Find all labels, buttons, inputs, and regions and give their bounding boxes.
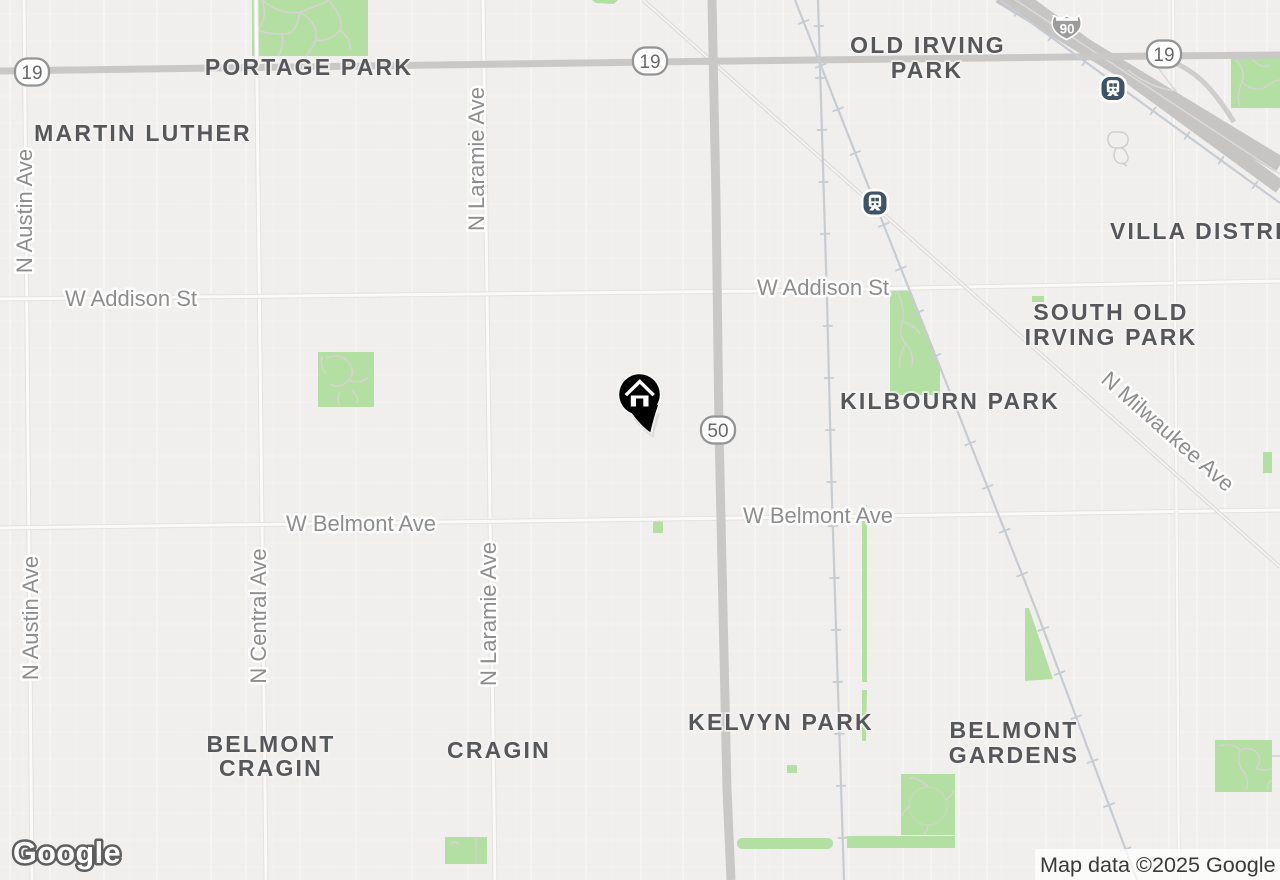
- svg-text:PORTAGE PARK: PORTAGE PARK: [205, 54, 413, 80]
- svg-text:W Addison St: W Addison St: [65, 286, 197, 311]
- svg-text:19: 19: [639, 52, 660, 73]
- svg-text:SOUTH OLD: SOUTH OLD: [1033, 299, 1188, 325]
- svg-text:N Laramie Ave: N Laramie Ave: [464, 87, 489, 231]
- svg-text:KELVYN PARK: KELVYN PARK: [688, 709, 874, 735]
- svg-text:50: 50: [707, 421, 728, 442]
- svg-text:CRAGIN: CRAGIN: [447, 737, 551, 763]
- svg-text:CRAGIN: CRAGIN: [219, 755, 323, 781]
- svg-text:19: 19: [1153, 45, 1174, 66]
- svg-text:IRVING PARK: IRVING PARK: [1025, 324, 1198, 350]
- svg-text:Map data ©2025 Google: Map data ©2025 Google: [1040, 852, 1276, 877]
- svg-text:19: 19: [21, 63, 42, 84]
- svg-text:W Belmont Ave: W Belmont Ave: [286, 511, 436, 536]
- svg-text:N Central Ave: N Central Ave: [246, 548, 271, 683]
- svg-text:N Laramie Ave: N Laramie Ave: [476, 542, 501, 686]
- svg-text:N Austin Ave: N Austin Ave: [12, 149, 37, 273]
- svg-text:W Addison St: W Addison St: [757, 275, 889, 300]
- svg-text:KILBOURN PARK: KILBOURN PARK: [840, 388, 1060, 414]
- svg-text:W Belmont Ave: W Belmont Ave: [743, 503, 893, 528]
- svg-text:BELMONT: BELMONT: [949, 717, 1078, 743]
- svg-text:VILLA DISTRICT: VILLA DISTRICT: [1110, 218, 1280, 244]
- svg-text:BELMONT: BELMONT: [206, 731, 335, 757]
- svg-text:MARTIN LUTHER: MARTIN LUTHER: [34, 120, 252, 146]
- svg-text:Google: Google: [13, 836, 121, 870]
- svg-text:N Austin Ave: N Austin Ave: [18, 556, 43, 680]
- svg-text:OLD IRVING: OLD IRVING: [850, 32, 1006, 58]
- svg-text:GARDENS: GARDENS: [949, 742, 1079, 768]
- svg-text:90: 90: [1060, 22, 1075, 37]
- svg-text:PARK: PARK: [891, 57, 963, 83]
